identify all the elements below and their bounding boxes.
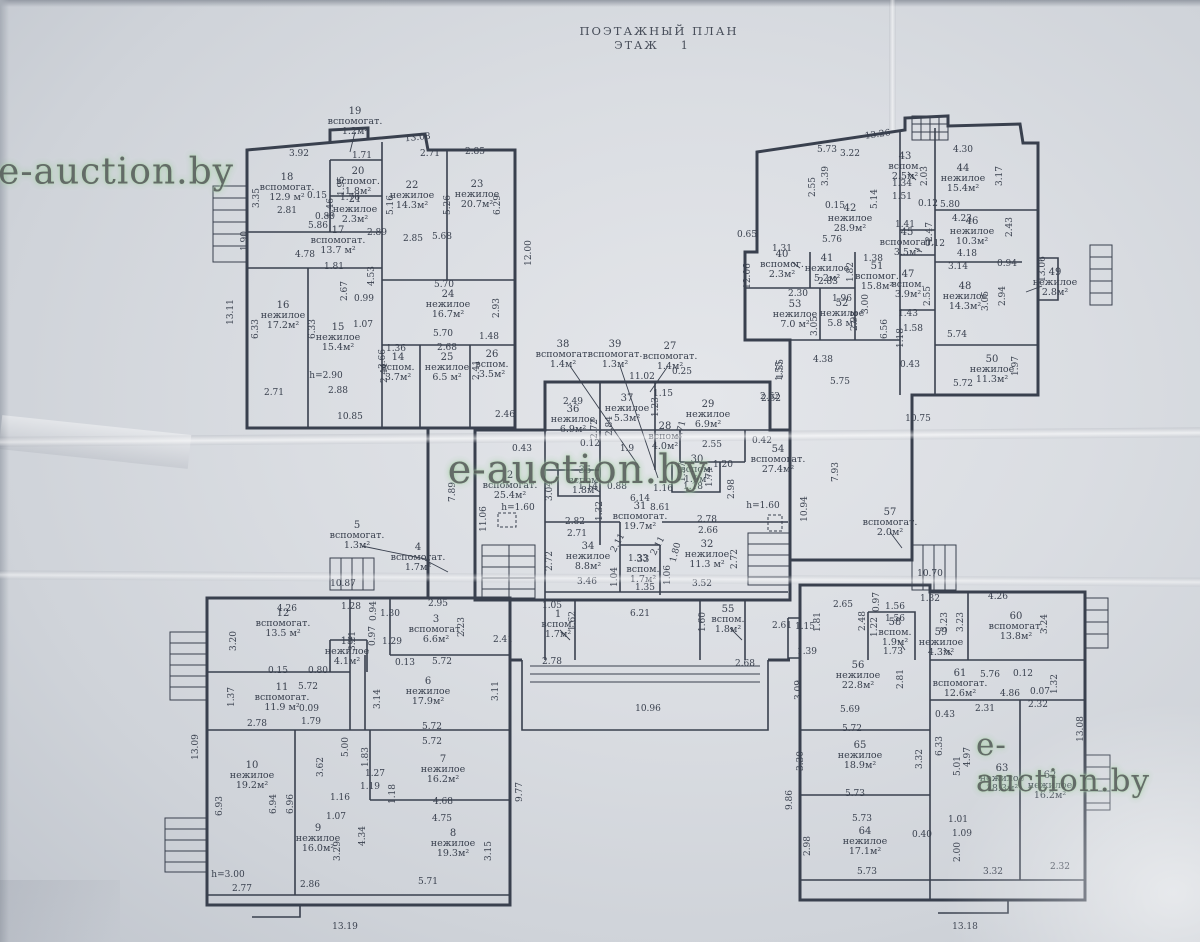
dimension-label: 1.48 xyxy=(479,332,499,342)
room-label-65: 65нежилое18.9м² xyxy=(838,740,883,771)
dimension-label: 3.92 xyxy=(289,149,309,159)
plan-floor-label: ЭТАЖ 1 xyxy=(614,39,689,52)
dimension-label: 5.00 xyxy=(341,737,351,757)
dimension-label: 1.05 xyxy=(542,601,562,611)
dimension-label: 2.65 xyxy=(833,600,853,610)
dimension-label: 2.85 xyxy=(465,147,485,157)
dimension-label: 0.12 xyxy=(918,199,938,209)
room-label-54: 54вспомогат.27.4м² xyxy=(751,444,806,475)
dimension-label: 2.72 xyxy=(590,419,600,439)
dimension-label: 0.40 xyxy=(912,830,932,840)
dimension-label: 1.56 xyxy=(885,614,905,624)
dimension-label: 3.11 xyxy=(491,681,501,701)
dimension-label: 1.55 xyxy=(776,359,786,379)
dimension-label: 1.06 xyxy=(663,565,673,585)
dimension-label: 2.46 xyxy=(495,410,515,420)
room-label-32: 32нежилое11.3 м² xyxy=(685,539,730,570)
dimension-label: 1.28 xyxy=(341,602,361,612)
dimension-label: 5.16 xyxy=(386,195,396,215)
dimension-label: 2.84 xyxy=(605,416,615,436)
dimension-label: 1.39 xyxy=(797,647,817,657)
room-label-50: 50нежилое11.3м² xyxy=(970,354,1015,385)
dimension-label: 1.19 xyxy=(360,782,380,792)
dimension-label: 0.97 xyxy=(368,626,378,646)
dimension-label: 0.13 xyxy=(395,658,415,668)
dimension-label: 1.62 xyxy=(568,611,578,631)
dimension-label: 3.15 xyxy=(484,841,494,861)
dimension-label: 3.24 xyxy=(1040,614,1050,634)
dimension-label: 5.70 xyxy=(434,280,454,290)
dimension-label: 5.74 xyxy=(947,330,967,340)
dimension-label: 3.20 xyxy=(229,631,239,651)
dimension-label: 4.78 xyxy=(295,250,315,260)
room-label-25: 25нежилое6.5 м² xyxy=(425,352,470,383)
dimension-label: 12.06 xyxy=(743,263,753,289)
dimension-label: 5.72 xyxy=(422,722,442,732)
dimension-label: 2.78 xyxy=(247,719,267,729)
dimension-label: 1.09 xyxy=(952,829,972,839)
dimension-label: 0.12 xyxy=(1013,669,1033,679)
room-label-4: 4вспомогат.1.7м² xyxy=(391,542,446,573)
room-label-55: 55вспом.1.8м² xyxy=(711,604,744,635)
dimension-label: 2.30 xyxy=(788,289,808,299)
dimension-label: 4.23 xyxy=(952,214,972,224)
dimension-label: 0.25 xyxy=(672,367,692,377)
dimension-label: 2.67 xyxy=(340,281,350,301)
dimension-label: h=1.60 xyxy=(501,503,535,513)
dimension-label: 4.26 xyxy=(988,592,1008,602)
photo-edge-shadow-left xyxy=(0,0,9,942)
dimension-label: 13.09 xyxy=(191,734,201,760)
dimension-label: 3.23 xyxy=(940,612,950,632)
dimension-label: 1.51 xyxy=(892,192,912,202)
dimension-label: h=3.00 xyxy=(211,870,245,880)
room-label-7: 7нежилое16.2м² xyxy=(421,754,466,785)
dimension-label: 1.83 xyxy=(361,747,371,767)
room-label-44: 44нежилое15.4м² xyxy=(941,163,986,194)
dimension-label: 2.81 xyxy=(277,206,297,216)
dimension-label: 13.19 xyxy=(332,922,358,932)
dimension-label: 2.88 xyxy=(328,386,348,396)
dimension-label: 2.71 xyxy=(264,388,284,398)
dimension-label: 13.06 xyxy=(1038,256,1048,282)
dimension-label: 2.11 xyxy=(649,535,667,557)
dimension-label: 2.66 xyxy=(698,526,718,536)
dimension-label: 1.46 xyxy=(326,198,336,218)
dimension-label: 1.32 xyxy=(1050,674,1060,694)
dimension-label: 2.71 xyxy=(567,529,587,539)
room-label-43: 43вспом.2.5м² xyxy=(888,151,921,182)
dimension-label: 10.94 xyxy=(800,496,810,522)
room-label-6: 6нежилое17.9м² xyxy=(406,676,451,707)
dimension-label: 2.95 xyxy=(428,599,448,609)
dimension-label: 0.09 xyxy=(299,704,319,714)
dimension-label: 4.86 xyxy=(1000,689,1020,699)
dimension-label: 6.33 xyxy=(935,736,945,756)
dimension-label: 6.33 xyxy=(308,319,318,339)
dimension-label: 2.93 xyxy=(492,298,502,318)
dimension-label: 5.76 xyxy=(980,670,1000,680)
dimension-label: 3.00 xyxy=(861,294,871,314)
dimension-label: 1.56 xyxy=(885,602,905,612)
dimension-label: 12.00 xyxy=(524,240,534,266)
dimension-label: 5.68 xyxy=(432,232,452,242)
dimension-label: 2.98 xyxy=(803,836,813,856)
dimension-label: 2.31 xyxy=(975,704,995,714)
dimension-label: 1.33 xyxy=(628,554,648,564)
room-label-19: 19вспомогат.1.2м² xyxy=(328,106,383,137)
room-label-38: 38вспомогат.1.4м² xyxy=(536,339,591,370)
dimension-label: 0.65 xyxy=(737,230,757,240)
dimension-label: 2.43 xyxy=(1005,217,1015,237)
dimension-label: 2.23 xyxy=(457,617,467,637)
watermark-1: e-auction.by xyxy=(448,447,709,493)
dimension-label: 0.99 xyxy=(354,294,374,304)
dimension-label: 1.32 xyxy=(920,594,940,604)
dimension-label: 1.90 xyxy=(240,231,250,251)
dimension-label: 0.97 xyxy=(872,592,882,612)
dimension-label: h=2.90 xyxy=(309,371,343,381)
floor-plan-photo: ПОЭТАЖНЫЙ ПЛАН ЭТАЖ 1 xyxy=(0,0,1200,942)
plan-title: ПОЭТАЖНЫЙ ПЛАН xyxy=(580,24,739,38)
dimension-label: 4.26 xyxy=(277,604,297,614)
dimension-label: 3.39 xyxy=(821,166,831,186)
dimension-label: 13.11 xyxy=(226,299,236,325)
dimension-label: 1.23 xyxy=(651,397,661,417)
dimension-label: 8.61 xyxy=(650,503,670,513)
dimension-label: 5.72 xyxy=(842,724,862,734)
dimension-label: 3.29 xyxy=(333,841,343,861)
dimension-label: 1.16 xyxy=(330,793,350,803)
dimension-label: 5.72 xyxy=(432,657,452,667)
room-label-39: 39вспомогат.1.3м² xyxy=(588,339,643,370)
dimension-label: 2.72 xyxy=(545,551,555,571)
dimension-label: 6.14 xyxy=(630,494,650,504)
dimension-label: 1.79 xyxy=(301,717,321,727)
dimension-label: 6.94 xyxy=(269,794,279,814)
dimension-label: 5.14 xyxy=(870,189,880,209)
dimension-label: 3.05 xyxy=(981,291,991,311)
room-label-8: 8нежилое19.3м² xyxy=(431,828,476,859)
dimension-label: 0.94 xyxy=(369,601,379,621)
dimension-label: 4.30 xyxy=(953,145,973,155)
dimension-label: 0.42 xyxy=(752,436,772,446)
dimension-label: 4.38 xyxy=(813,355,833,365)
dimension-label: 0.43 xyxy=(935,710,955,720)
dimension-label: 5.01 xyxy=(953,756,963,776)
dimension-label: 1.18 xyxy=(388,784,398,804)
dimension-label: 13.18 xyxy=(952,922,978,932)
dimension-label: 13.26 xyxy=(864,128,891,142)
dimension-label: 1.71 xyxy=(352,151,372,161)
dimension-label: 2.98 xyxy=(850,311,860,331)
dimension-label: 0.15 xyxy=(825,201,845,211)
dimension-label: 1.22 xyxy=(870,617,880,637)
dimension-label: 2.94 xyxy=(998,286,1008,306)
dimension-label: 9.77 xyxy=(515,782,525,802)
room-label-56: 56нежилое22.8м² xyxy=(836,660,881,691)
dimension-label: 2.68 xyxy=(437,343,457,353)
dimension-label: 2.68 xyxy=(735,659,755,669)
dimension-label: 2.71 xyxy=(420,149,440,159)
dimension-label: 2.82 xyxy=(565,517,585,527)
dimension-label: 1.07 xyxy=(326,812,346,822)
dimension-label: 7.93 xyxy=(831,462,841,482)
dimension-label: 3.17 xyxy=(995,166,1005,186)
dimension-label: 6.93 xyxy=(215,796,225,816)
dimension-label: 11.06 xyxy=(479,506,489,532)
dimension-label: 10.96 xyxy=(635,704,661,714)
room-label-22: 22нежилое14.3м² xyxy=(390,180,435,211)
dimension-label: 2.00 xyxy=(953,842,963,862)
dimension-label: 3.14 xyxy=(373,689,383,709)
room-label-64: 64нежилое17.1м² xyxy=(843,826,888,857)
dimension-label: 3.05 xyxy=(810,316,820,336)
dimension-label: 5.73 xyxy=(817,145,837,155)
room-label-60: 60вспомогат.13.8м² xyxy=(989,611,1044,642)
dimension-label: 2.72 xyxy=(730,549,740,569)
dimension-label: 1.29 xyxy=(382,637,402,647)
dimension-label: 2.11 xyxy=(609,532,627,554)
dimension-label: 3.21 xyxy=(348,631,358,651)
dimension-label: 1.34 xyxy=(892,179,912,189)
dimension-label: 9.86 xyxy=(785,790,795,810)
dimension-label: 1.80 xyxy=(669,541,684,563)
dimension-label: 6.96 xyxy=(286,794,296,814)
dimension-label: h=1.60 xyxy=(746,501,780,511)
room-label-10: 10нежилое19.2м² xyxy=(230,760,275,791)
dimension-label: 2.86 xyxy=(300,880,320,890)
dimension-label: 4.34 xyxy=(358,826,368,846)
dimension-label: 1.31 xyxy=(772,244,792,254)
dimension-label: 10.75 xyxy=(905,414,931,424)
dimension-label: 5.72 xyxy=(422,737,442,747)
dimension-label: 3.09 xyxy=(794,680,804,700)
dimension-label: 5.86 xyxy=(308,221,328,231)
dimension-label: 2.98 xyxy=(727,479,737,499)
watermark-2: e-auction.by xyxy=(976,727,1150,799)
dimension-label: 1.01 xyxy=(948,815,968,825)
dimension-label: 3.32 xyxy=(915,749,925,769)
dimension-label: 1.76 xyxy=(340,193,360,203)
dimension-label: 1.96 xyxy=(832,294,852,304)
dimension-label: 10.87 xyxy=(330,579,356,589)
room-label-16: 16нежилое17.2м² xyxy=(261,300,306,331)
dimension-label: 2.81 xyxy=(896,669,906,689)
dimension-label: 6.33 xyxy=(251,319,261,339)
dimension-label: 1.97 xyxy=(1011,356,1021,376)
room-label-3: 3вспомогат.6.6м² xyxy=(409,614,464,645)
dimension-label: 1.60 xyxy=(698,612,708,632)
dimension-label: 5.73 xyxy=(852,814,872,824)
dimension-label: 0.43 xyxy=(900,360,920,370)
dimension-label: 3.30 xyxy=(796,751,806,771)
dimension-label: 5.75 xyxy=(830,377,850,387)
dimension-label: 2.78 xyxy=(697,515,717,525)
dimension-label: 5.72 xyxy=(298,682,318,692)
room-label-51: 51вспомог.15.8м² xyxy=(855,261,899,292)
dimension-label: 3.52 xyxy=(692,579,712,589)
dimension-label: 3.46 xyxy=(577,577,597,587)
dimension-label: 1.04 xyxy=(610,567,620,587)
dimension-label: 2.62 xyxy=(761,394,781,404)
dimension-label: 2.55 xyxy=(923,286,933,306)
dimension-label: 6.21 xyxy=(630,609,650,619)
dimension-label: 1.35 xyxy=(635,583,655,593)
watermark-0: e-auction.by xyxy=(0,152,234,193)
dimension-label: 3.62 xyxy=(316,757,326,777)
dimension-label: 4.97 xyxy=(963,747,973,767)
dimension-label: 1.43 xyxy=(898,309,918,319)
dimension-label: 6.29 xyxy=(493,195,503,215)
dimension-label: 2.55 xyxy=(808,177,818,197)
dimension-label: 10.70 xyxy=(917,569,943,579)
dimension-label: 1.20 xyxy=(713,460,733,470)
dimension-label: 1.36 xyxy=(386,344,406,354)
dimension-label: 1.58 xyxy=(903,324,923,334)
dimension-label: 2.85 xyxy=(403,234,423,244)
dimension-label: 1.27 xyxy=(365,769,385,779)
dimension-label: 1.32 xyxy=(595,501,605,521)
dimension-label: 5.73 xyxy=(857,867,877,877)
dimension-label: 1.07 xyxy=(353,320,373,330)
dimension-label: 0.94 xyxy=(997,259,1017,269)
dimension-label: 1.73 xyxy=(883,647,903,657)
dimension-label: 2.41 xyxy=(493,635,513,645)
dimension-label: 2.49 xyxy=(563,397,583,407)
dimension-label: 5.70 xyxy=(433,329,453,339)
room-label-29: 29нежилое6.9м² xyxy=(686,399,731,430)
dimension-label: 2.03 xyxy=(920,166,930,186)
dimension-label: 3.22 xyxy=(840,149,860,159)
dimension-label: 2.32 xyxy=(1050,862,1070,872)
dimension-label: 11.02 xyxy=(629,372,655,382)
dimension-label: 1.30 xyxy=(380,609,400,619)
dimension-label: 2.89 xyxy=(367,228,387,238)
dimension-label: 1.38 xyxy=(863,254,883,264)
dimension-label: 5.73 xyxy=(845,789,865,799)
dimension-label: 1.37 xyxy=(227,687,237,707)
dimension-label: 5.80 xyxy=(940,200,960,210)
dimension-label: 3.23 xyxy=(956,612,966,632)
room-label-34: 34нежилое8.8м² xyxy=(566,541,611,572)
room-label-5: 5вспомогат.1.3м² xyxy=(330,520,385,551)
dimension-label: 2.41 xyxy=(472,360,482,380)
dimension-label: 1.41 xyxy=(895,220,915,230)
dimension-label: 2.77 xyxy=(232,884,252,894)
room-label-57: 57вспомогат.2.0м² xyxy=(863,507,918,538)
dimension-label: 0.15 xyxy=(307,191,327,201)
dimension-label: 2.48 xyxy=(858,611,868,631)
photo-edge-shadow-top xyxy=(0,0,1200,7)
dimension-label: 0.80 xyxy=(308,666,328,676)
dimension-label: 5.69 xyxy=(840,705,860,715)
dimension-label: 2.83 xyxy=(818,277,838,287)
dimension-label: 6.56 xyxy=(880,319,890,339)
dimension-label: 5.72 xyxy=(953,379,973,389)
dimension-label: 0.07 xyxy=(1030,687,1050,697)
dimension-label: 3.14 xyxy=(948,262,968,272)
dimension-label: 4.68 xyxy=(433,797,453,807)
dimension-label: 4.53 xyxy=(367,266,377,286)
dimension-label: 3.32 xyxy=(983,867,1003,877)
dimension-label: 1.18 xyxy=(896,328,906,348)
dimension-label: 2.44 xyxy=(380,363,390,383)
dimension-label: 3.35 xyxy=(252,188,262,208)
dimension-label: 5.71 xyxy=(418,877,438,887)
dimension-label: 0.15 xyxy=(268,666,288,676)
dimension-label: 2.61 xyxy=(772,621,792,631)
dimension-label: 2.78 xyxy=(542,657,562,667)
dimension-label: 0.12 xyxy=(925,239,945,249)
dimension-label: 2.32 xyxy=(1028,700,1048,710)
dimension-label: 1.81 xyxy=(324,262,344,272)
dimension-label: 1.82 xyxy=(846,262,856,282)
dimension-label: 1.15 xyxy=(795,622,815,632)
dimension-label: 10.85 xyxy=(337,412,363,422)
dimension-label: 5.26 xyxy=(443,195,453,215)
dimension-label: 4.75 xyxy=(432,814,452,824)
room-label-24: 24нежилое16.7м² xyxy=(426,289,471,320)
dimension-label: 5.76 xyxy=(822,235,842,245)
dimension-label: 4.18 xyxy=(957,249,977,259)
